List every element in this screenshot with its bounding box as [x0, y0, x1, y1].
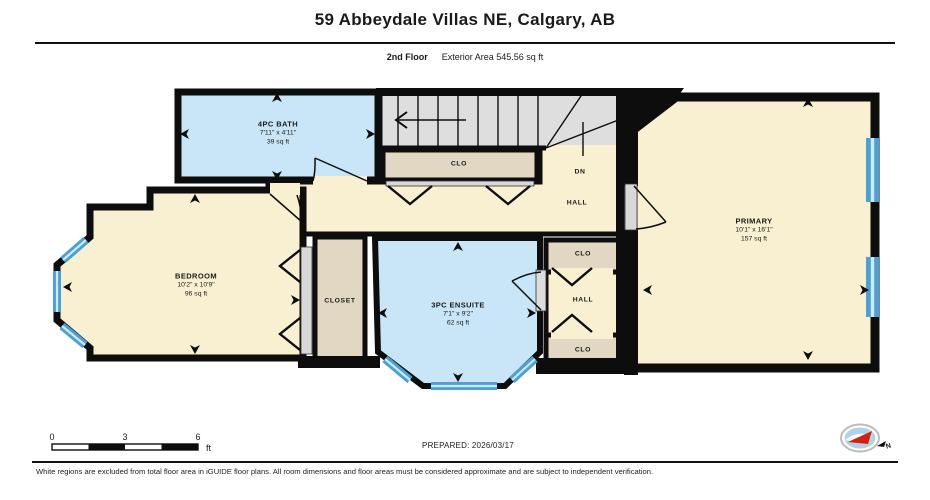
room-label-primary: PRIMARY 10'1" x 16'1" 157 sq ft: [735, 217, 772, 244]
scale-unit: ft: [206, 443, 211, 453]
room-label-clo-bottom: CLO: [575, 347, 591, 354]
scale-tick-0: 0: [49, 432, 54, 442]
page-title: 59 Abbeydale Villas NE, Calgary, AB: [0, 10, 930, 30]
scale-tick-6: 6: [195, 432, 200, 442]
header-divider: [35, 42, 895, 44]
scale-tick-3: 3: [122, 432, 127, 442]
room-label-hall-upper: HALL: [567, 200, 588, 207]
room-label-closet: CLOSET: [324, 298, 355, 305]
scale-bar: [52, 444, 198, 450]
room-label-ensuite: 3PC ENSUITE 7'1" x 9'2" 62 sq ft: [431, 301, 485, 328]
room-label-clo-top: CLO: [575, 251, 591, 258]
disclaimer-text: White regions are excluded from total fl…: [36, 467, 896, 476]
clo-bottom-opening: [551, 330, 613, 339]
floor-subtitle: 2nd FloorExterior Area 545.56 sq ft: [0, 52, 930, 62]
room-label-clo-stairs: CLO: [451, 161, 467, 168]
floor-name: 2nd Floor: [387, 52, 428, 62]
stairs-dn-label: DN: [574, 169, 585, 176]
closet-door-panels: [301, 247, 312, 354]
room-label-hall-lower: HALL: [573, 297, 594, 304]
floorplan-page: 59 Abbeydale Villas NE, Calgary, AB 2nd …: [0, 0, 930, 500]
exterior-area: Exterior Area 545.56 sq ft: [442, 52, 544, 62]
footer-divider: [32, 461, 898, 463]
staircase: [380, 93, 623, 156]
floorplan-drawing: [0, 0, 930, 500]
prepared-date: PREPARED: 2026/03/17: [422, 441, 514, 450]
room-label-bedroom: BEDROOM 10'2" x 10'9" 96 sq ft: [175, 272, 217, 299]
room-label-bath: 4PC BATH 7'11" x 4'11" 39 sq ft: [258, 120, 298, 147]
compass-icon: [841, 425, 886, 452]
